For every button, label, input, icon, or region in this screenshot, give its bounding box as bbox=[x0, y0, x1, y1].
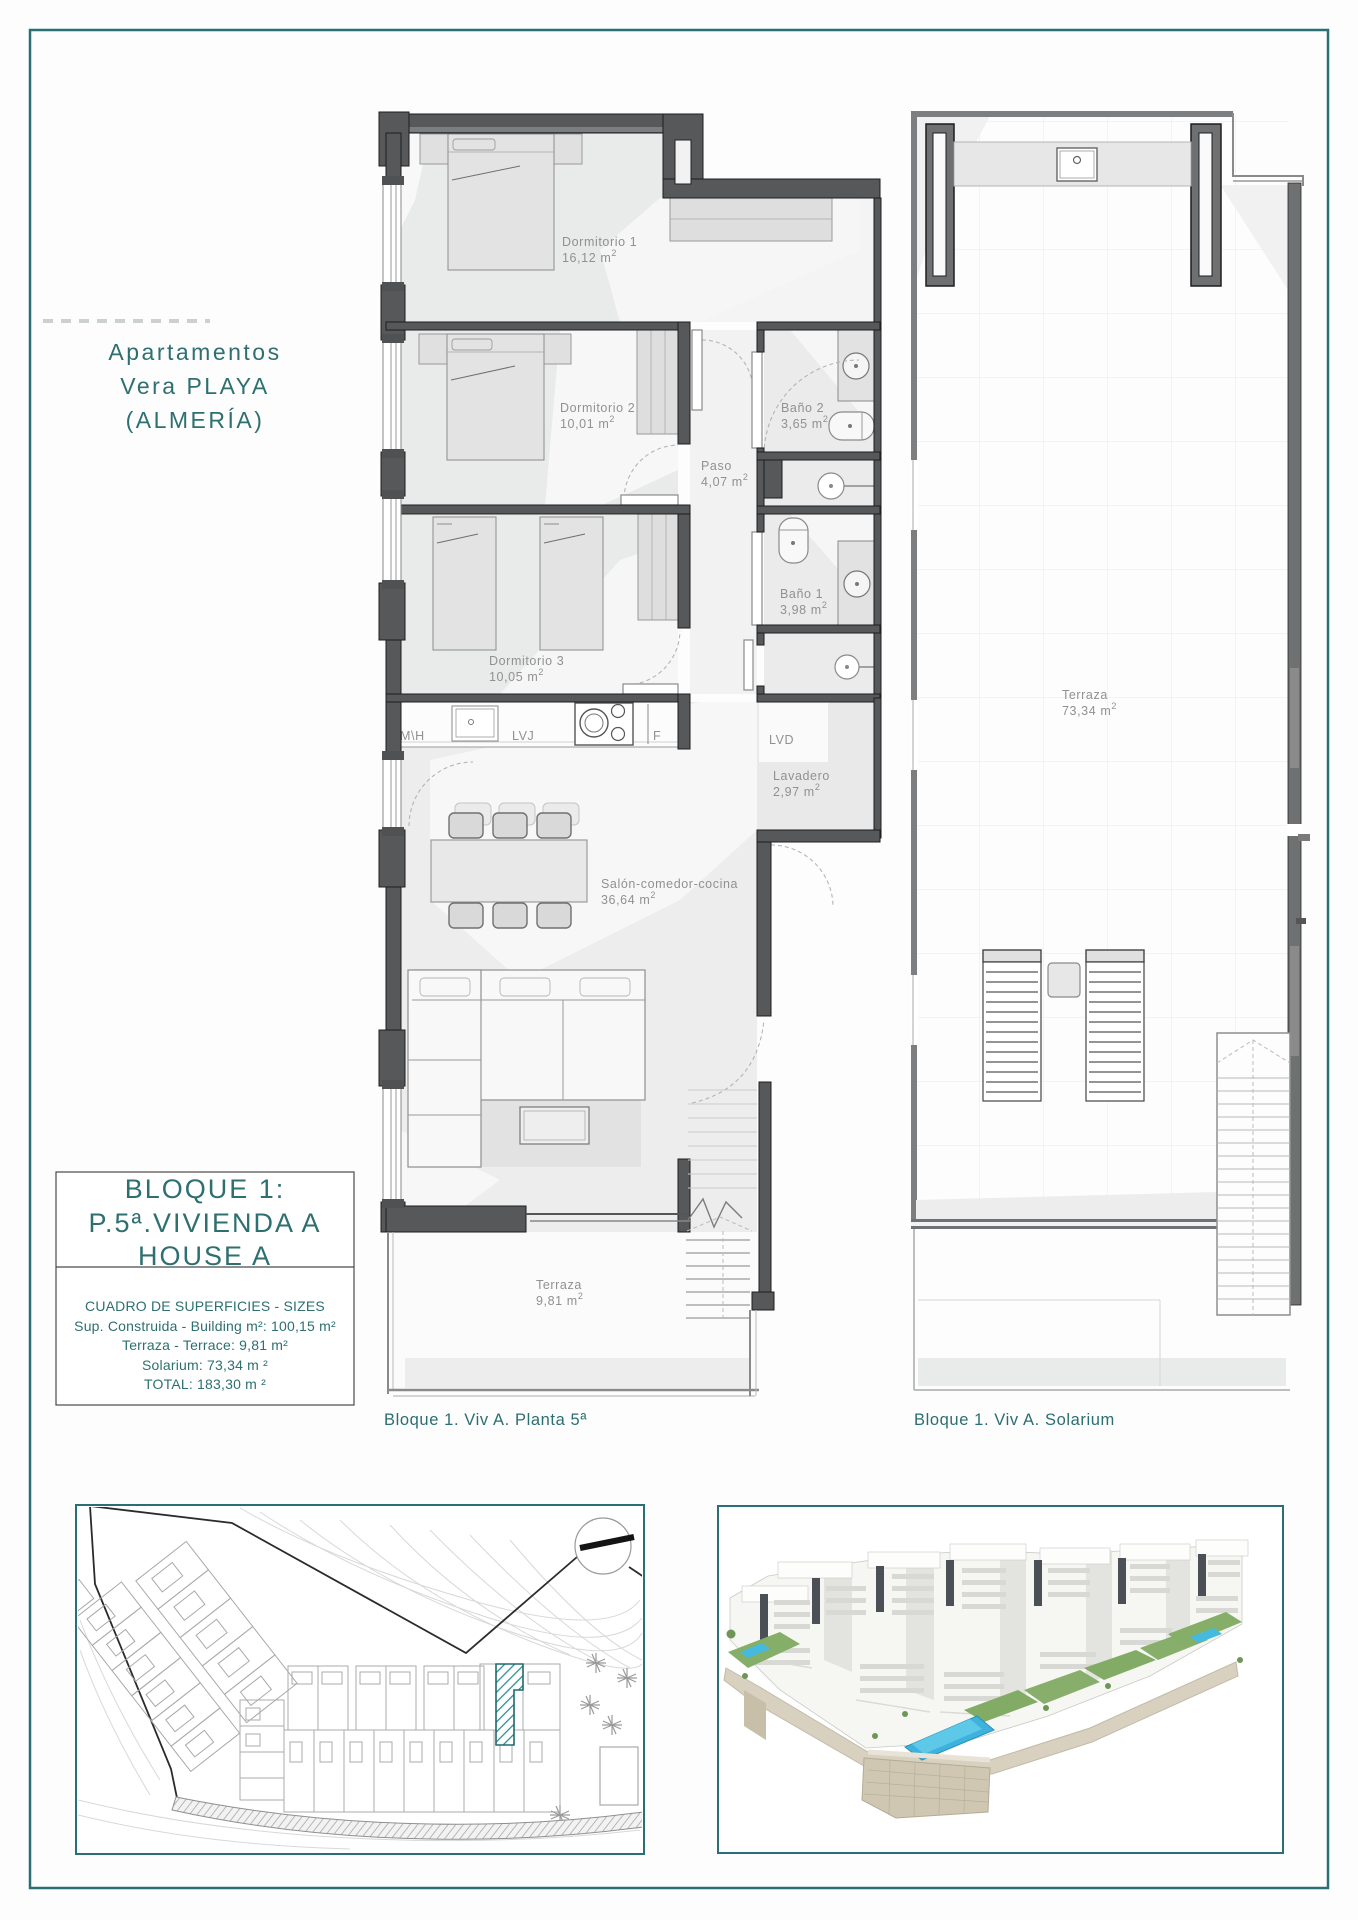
svg-text:BLOQUE 1:: BLOQUE 1: bbox=[125, 1174, 286, 1204]
svg-text:Bloque 1. Viv A. Solarium: Bloque 1. Viv A. Solarium bbox=[914, 1411, 1115, 1429]
svg-text:Baño 2: Baño 2 bbox=[781, 401, 824, 415]
svg-text:2,97 m2: 2,97 m2 bbox=[773, 782, 820, 799]
svg-text:10,01 m2: 10,01 m2 bbox=[560, 414, 615, 431]
svg-text:Terraza: Terraza bbox=[1062, 688, 1108, 702]
svg-text:F: F bbox=[653, 729, 661, 743]
svg-text:4,07 m2: 4,07 m2 bbox=[701, 472, 748, 489]
svg-text:Sup. Construida - Building m²: Sup. Construida - Building m²: 100,15 m² bbox=[74, 1318, 336, 1334]
svg-text:Dormitorio 3: Dormitorio 3 bbox=[489, 654, 564, 668]
svg-text:Lavadero: Lavadero bbox=[773, 769, 830, 783]
svg-text:Dormitorio 2: Dormitorio 2 bbox=[560, 401, 635, 415]
svg-text:Terraza: Terraza bbox=[536, 1278, 582, 1292]
svg-text:Vera PLAYA: Vera PLAYA bbox=[120, 373, 269, 399]
svg-text:M\H: M\H bbox=[400, 729, 425, 743]
svg-text:Paso: Paso bbox=[701, 459, 732, 473]
svg-text:Solarium: 73,34 m ²: Solarium: 73,34 m ² bbox=[142, 1357, 268, 1373]
svg-text:36,64 m2: 36,64 m2 bbox=[601, 890, 656, 907]
svg-text:HOUSE A: HOUSE A bbox=[138, 1241, 272, 1271]
svg-text:Baño 1: Baño 1 bbox=[780, 587, 823, 601]
svg-text:CUADRO DE SUPERFICIES - SIZES: CUADRO DE SUPERFICIES - SIZES bbox=[85, 1298, 325, 1314]
svg-text:P.5ª.VIVIENDA A: P.5ª.VIVIENDA A bbox=[88, 1208, 321, 1238]
svg-text:3,65 m2: 3,65 m2 bbox=[781, 414, 828, 431]
svg-text:(ALMERÍA): (ALMERÍA) bbox=[126, 407, 265, 433]
svg-text:16,12 m2: 16,12 m2 bbox=[562, 248, 617, 265]
svg-text:73,34 m2: 73,34 m2 bbox=[1062, 701, 1117, 718]
svg-text:LVD: LVD bbox=[769, 733, 794, 747]
svg-text:3,98 m2: 3,98 m2 bbox=[780, 600, 827, 617]
svg-text:10,05 m2: 10,05 m2 bbox=[489, 667, 544, 684]
svg-text:Terraza - Terrace: 9,81 m²: Terraza - Terrace: 9,81 m² bbox=[122, 1337, 288, 1353]
svg-text:Apartamentos: Apartamentos bbox=[108, 339, 281, 365]
svg-text:Bloque 1. Viv A. Planta 5ª: Bloque 1. Viv A. Planta 5ª bbox=[384, 1411, 587, 1429]
svg-text:9,81 m2: 9,81 m2 bbox=[536, 1291, 583, 1308]
svg-text:LVJ: LVJ bbox=[512, 729, 534, 743]
svg-text:Dormitorio 1: Dormitorio 1 bbox=[562, 235, 637, 249]
svg-text:Salón-comedor-cocina: Salón-comedor-cocina bbox=[601, 877, 738, 891]
svg-text:TOTAL: 183,30 m ²: TOTAL: 183,30 m ² bbox=[144, 1376, 266, 1392]
